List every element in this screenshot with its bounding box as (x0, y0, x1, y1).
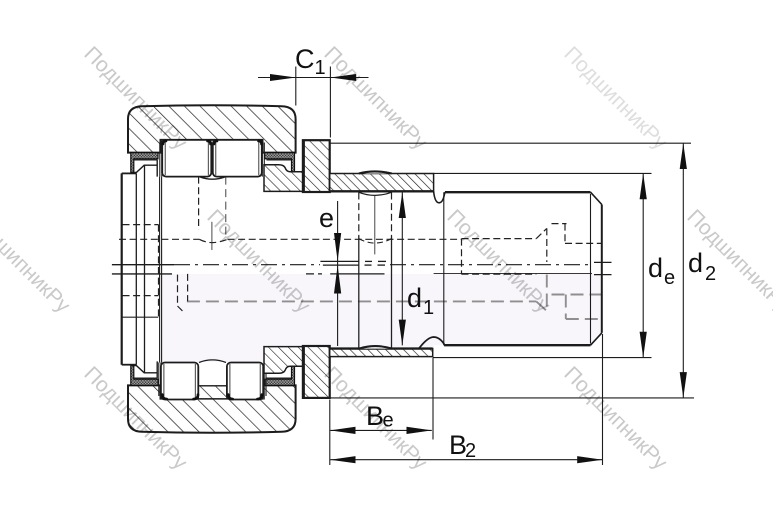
svg-text:1: 1 (423, 297, 434, 319)
svg-text:e: e (319, 203, 334, 233)
svg-text:C: C (295, 44, 315, 74)
svg-text:e: e (664, 267, 675, 289)
svg-text:d: d (407, 283, 422, 313)
svg-text:d: d (648, 253, 663, 283)
svg-text:2: 2 (465, 440, 476, 462)
svg-text:2: 2 (705, 263, 716, 285)
svg-text:d: d (688, 248, 703, 278)
